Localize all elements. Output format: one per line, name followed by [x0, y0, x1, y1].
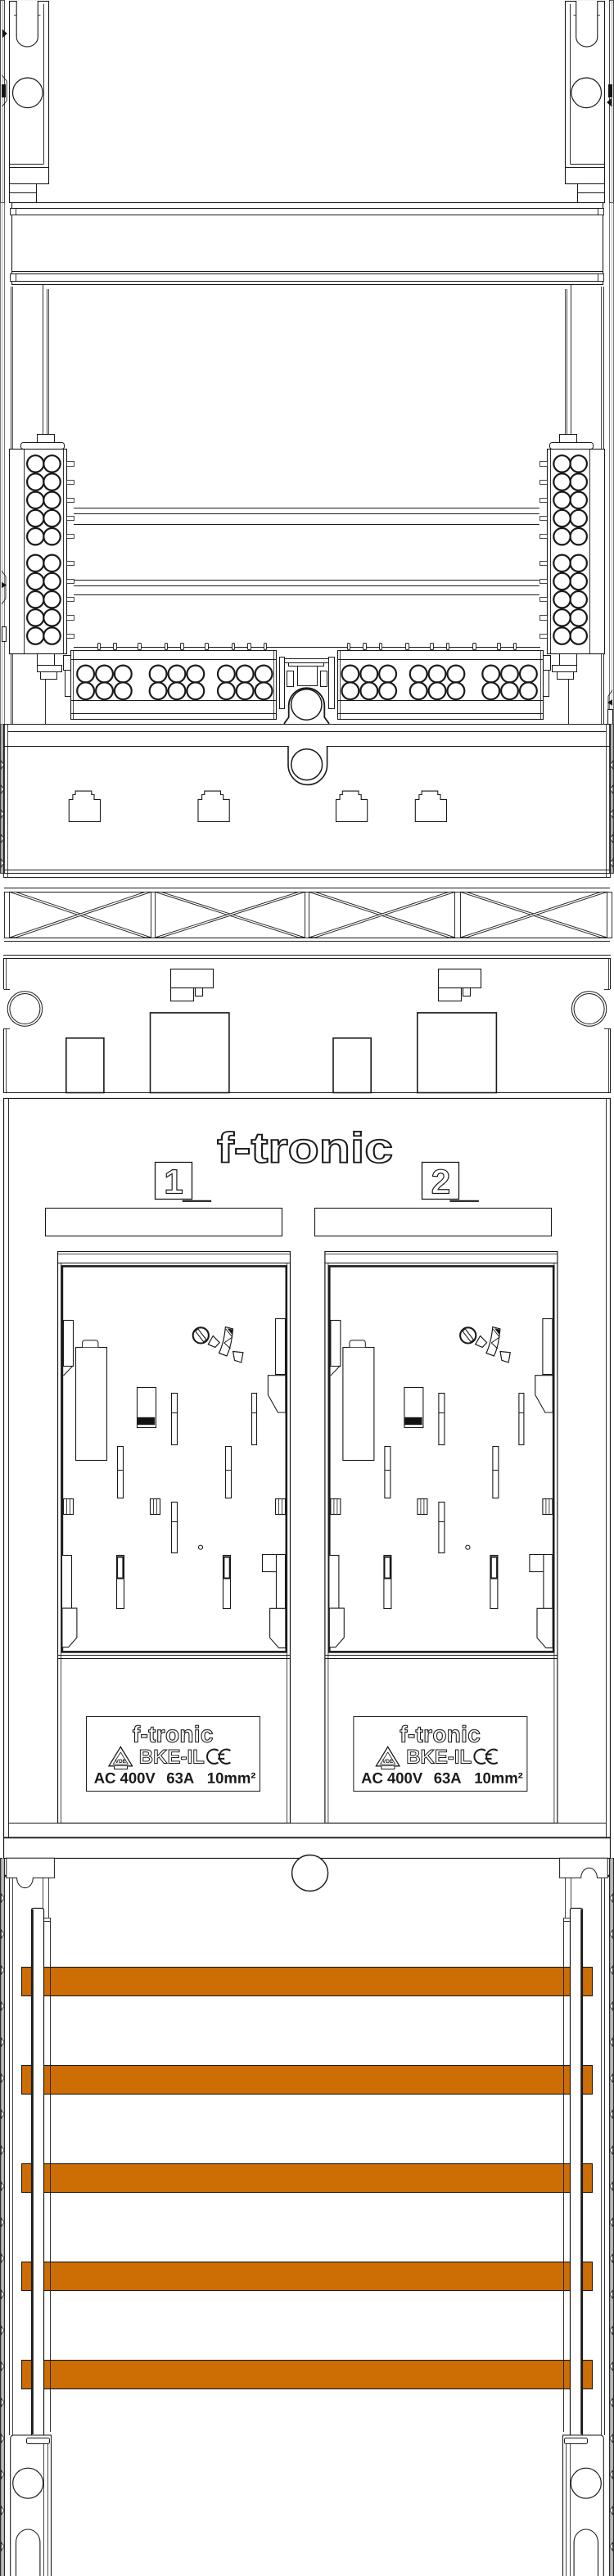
svg-text:63A: 63A	[166, 1769, 194, 1787]
svg-text:f-tronic: f-tronic	[217, 1125, 393, 1173]
svg-text:63A: 63A	[434, 1769, 462, 1787]
svg-text:2: 2	[431, 1162, 450, 1200]
svg-text:10mm²: 10mm²	[207, 1769, 256, 1787]
svg-text:BKE-IL: BKE-IL	[139, 1746, 205, 1768]
svg-text:1: 1	[164, 1162, 183, 1200]
svg-text:AC 400V: AC 400V	[94, 1769, 156, 1787]
svg-text:f-tronic: f-tronic	[400, 1721, 481, 1747]
svg-text:AC 400V: AC 400V	[361, 1769, 423, 1787]
svg-text:BKE-IL: BKE-IL	[406, 1746, 472, 1768]
svg-text:VDE: VDE	[115, 1759, 127, 1765]
svg-text:f-tronic: f-tronic	[133, 1721, 214, 1747]
svg-text:10mm²: 10mm²	[474, 1769, 523, 1787]
svg-text:VDE: VDE	[382, 1759, 394, 1765]
